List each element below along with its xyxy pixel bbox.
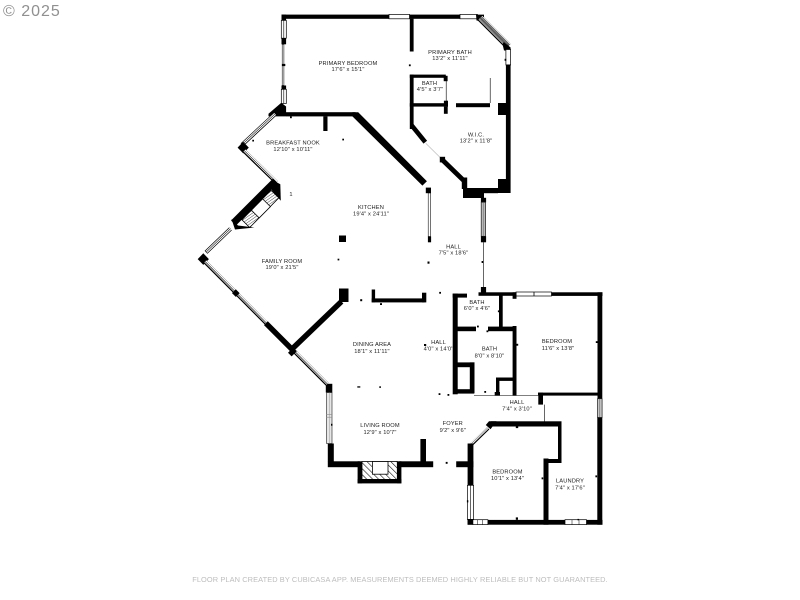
svg-text:17'6" x 15'1": 17'6" x 15'1"	[331, 67, 364, 73]
svg-text:7'4" x 17'6": 7'4" x 17'6"	[555, 485, 585, 491]
svg-text:HALL: HALL	[446, 245, 461, 251]
svg-text:13'2" x 11'11": 13'2" x 11'11"	[432, 56, 467, 62]
svg-text:W.I.C.: W.I.C.	[468, 133, 485, 139]
svg-text:13'2" x 11'8": 13'2" x 11'8"	[460, 139, 493, 145]
svg-text:7'5" x 18'6": 7'5" x 18'6"	[439, 251, 469, 257]
svg-text:19'0" x 21'5": 19'0" x 21'5"	[265, 265, 298, 271]
svg-text:FAMILY ROOM: FAMILY ROOM	[262, 259, 303, 265]
svg-text:7'4" x 3'10": 7'4" x 3'10"	[502, 407, 532, 413]
svg-text:LIVING ROOM: LIVING ROOM	[360, 423, 400, 429]
svg-text:4'0" x 14'0": 4'0" x 14'0"	[424, 347, 454, 353]
svg-text:BATH: BATH	[469, 300, 484, 306]
svg-text:LAUNDRY: LAUNDRY	[556, 479, 584, 485]
svg-text:HALL: HALL	[431, 340, 446, 346]
svg-text:PRIMARY BEDROOM: PRIMARY BEDROOM	[319, 61, 378, 67]
svg-text:10'1" x 13'4": 10'1" x 13'4"	[491, 476, 524, 482]
svg-text:BREAKFAST NOOK: BREAKFAST NOOK	[266, 141, 320, 147]
svg-text:19'4" x 24'11": 19'4" x 24'11"	[353, 212, 389, 218]
svg-text:4'5" x 3'7": 4'5" x 3'7"	[417, 87, 443, 93]
svg-text:11'6" x 13'8": 11'6" x 13'8"	[542, 346, 575, 352]
svg-text:FLOOR PLAN CREATED BY CUBICASA: FLOOR PLAN CREATED BY CUBICASA APP. MEAS…	[192, 575, 608, 584]
svg-text:18'1" x 11'11": 18'1" x 11'11"	[354, 349, 389, 355]
svg-text:HALL: HALL	[510, 400, 525, 406]
svg-text:1: 1	[289, 192, 292, 198]
svg-text:9'2" x 9'6": 9'2" x 9'6"	[440, 428, 466, 434]
svg-text:BEDROOM: BEDROOM	[492, 469, 522, 475]
svg-text:12'10" x 10'11": 12'10" x 10'11"	[273, 147, 312, 153]
svg-text:BEDROOM: BEDROOM	[542, 339, 572, 345]
svg-text:DINING AREA: DINING AREA	[353, 342, 391, 348]
svg-text:© 2025: © 2025	[3, 3, 61, 20]
svg-text:8'0" x 8'10": 8'0" x 8'10"	[475, 354, 505, 360]
svg-text:6'0" x 4'6": 6'0" x 4'6"	[464, 306, 490, 312]
svg-text:KITCHEN: KITCHEN	[358, 205, 384, 211]
svg-text:PRIMARY BATH: PRIMARY BATH	[428, 50, 472, 56]
svg-text:BATH: BATH	[482, 347, 497, 353]
svg-text:12'9" x 10'7": 12'9" x 10'7"	[363, 430, 396, 436]
svg-text:FOYER: FOYER	[443, 421, 463, 427]
